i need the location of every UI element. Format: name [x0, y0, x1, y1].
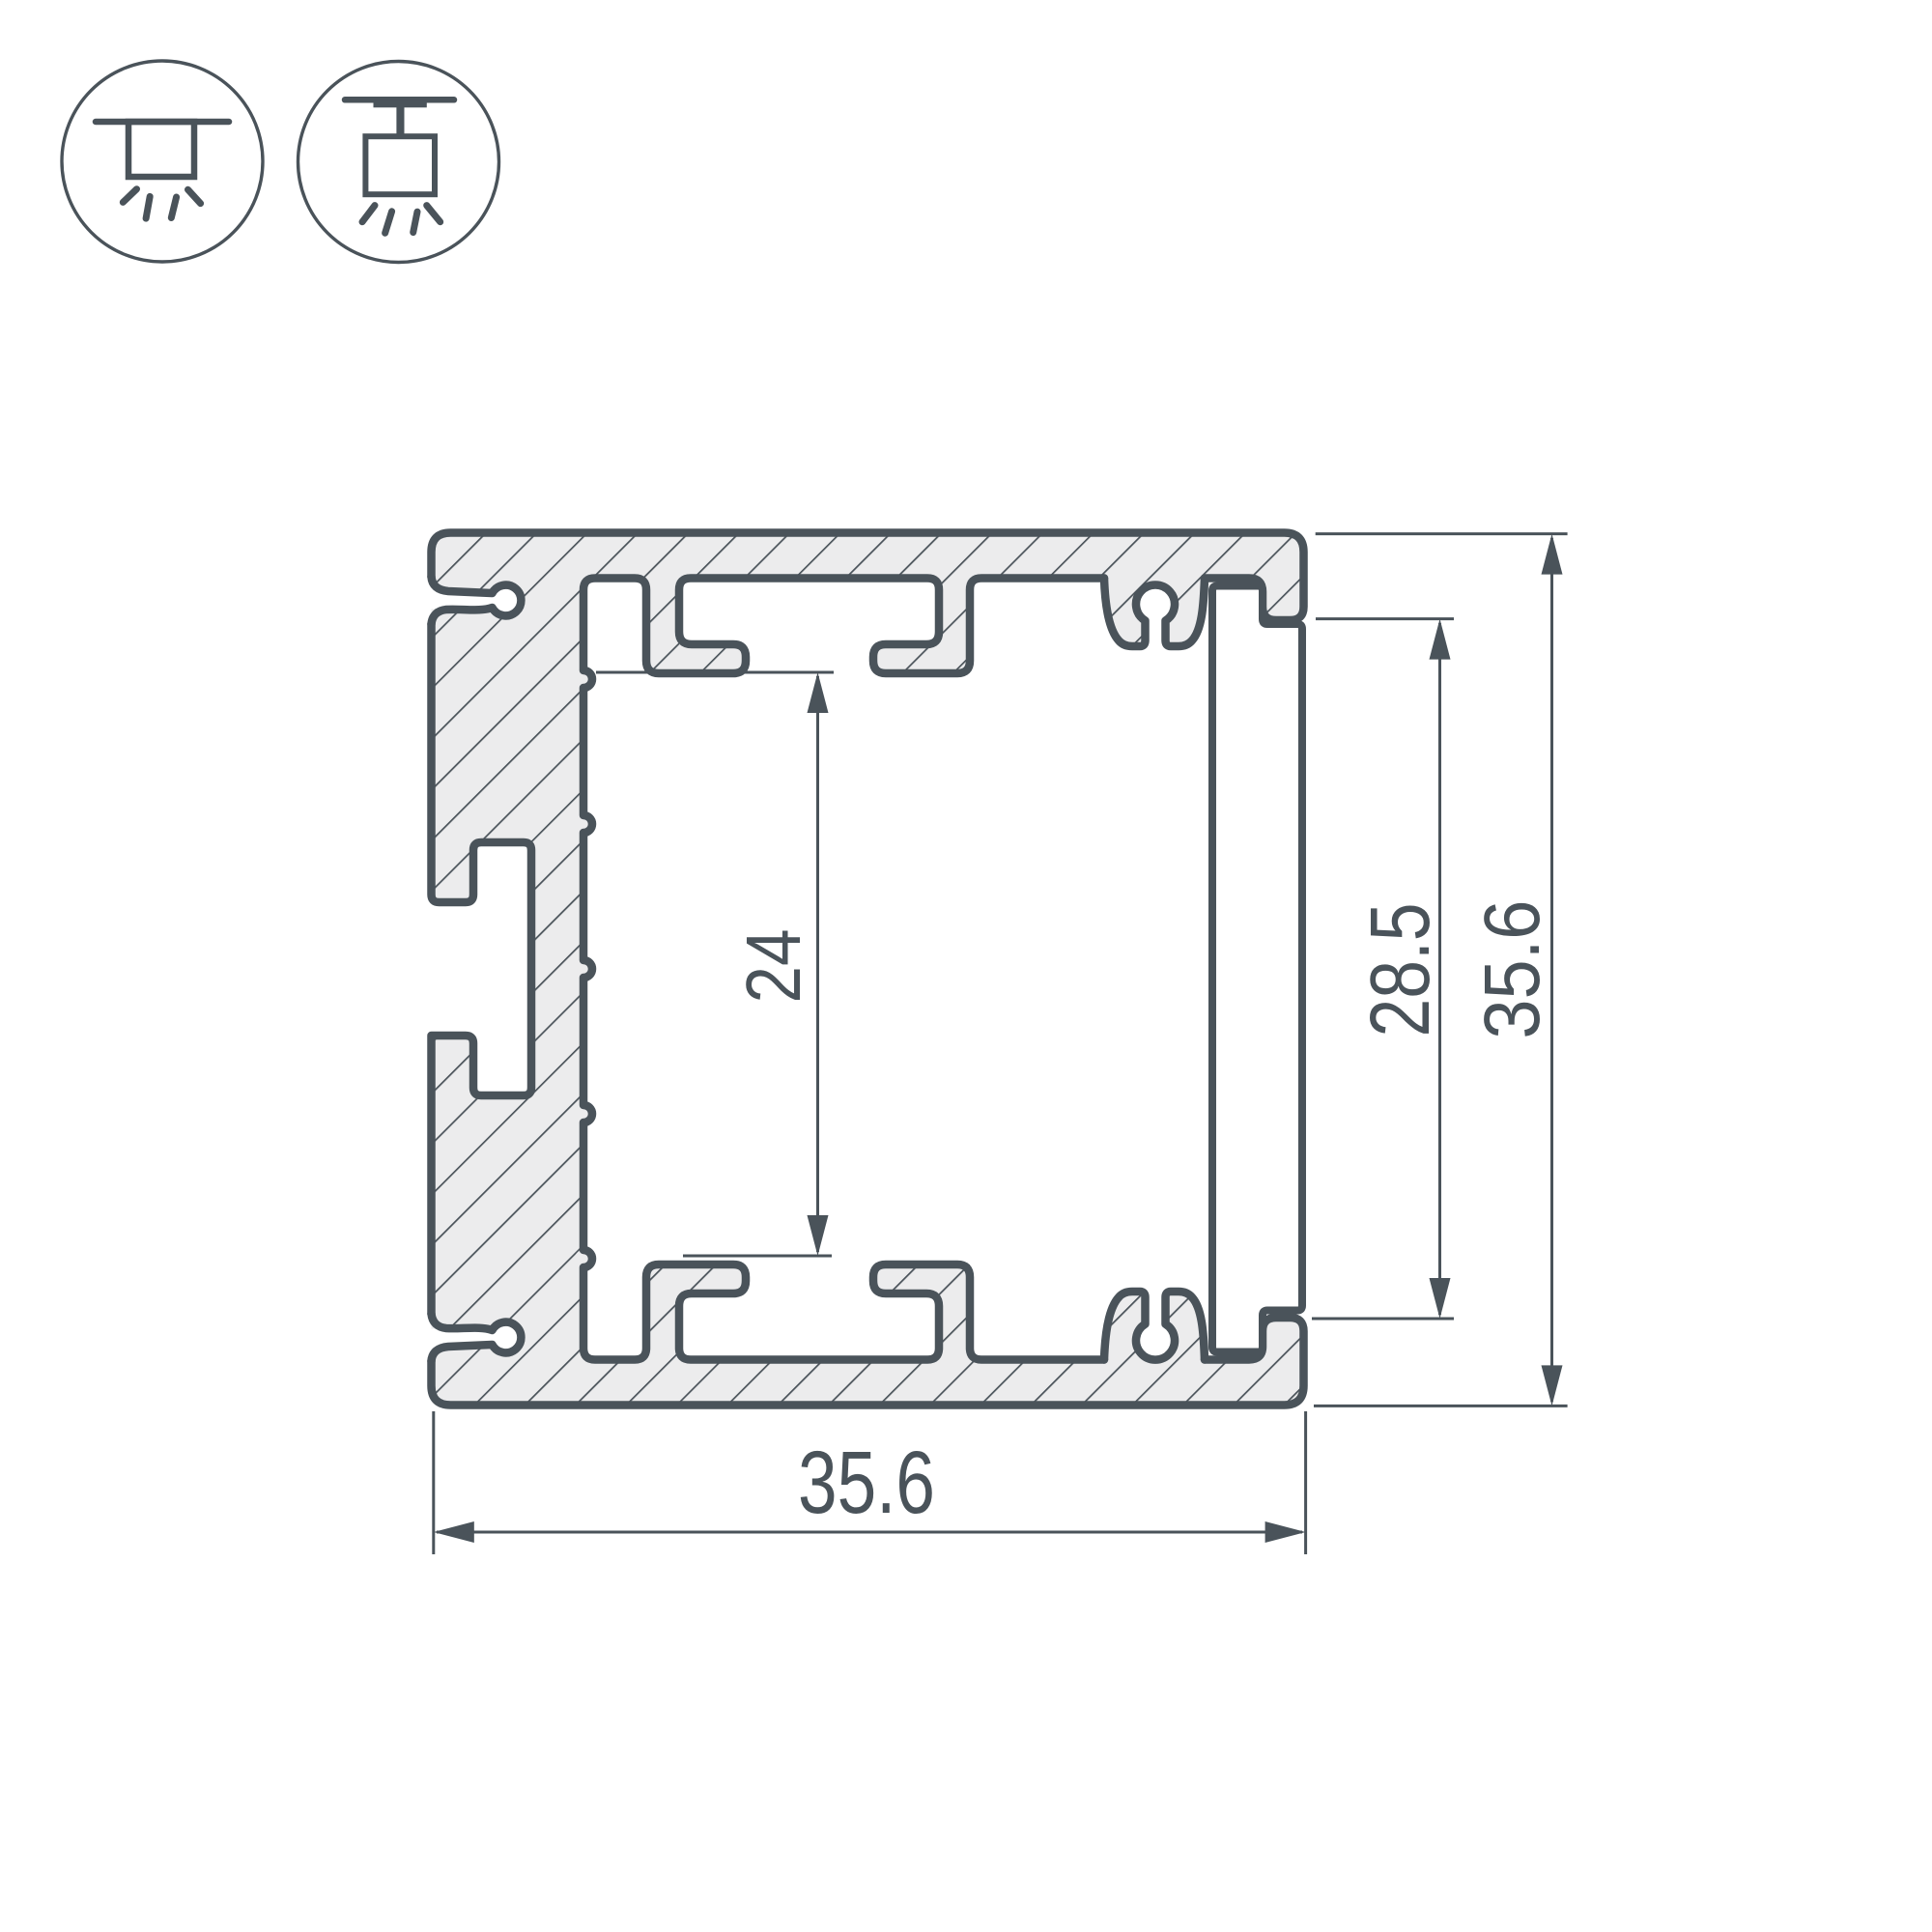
svg-text:35.6: 35.6 [1468, 900, 1556, 1039]
svg-text:24: 24 [730, 929, 816, 1004]
svg-text:35.6: 35.6 [798, 1434, 935, 1532]
svg-text:28.5: 28.5 [1353, 903, 1447, 1037]
